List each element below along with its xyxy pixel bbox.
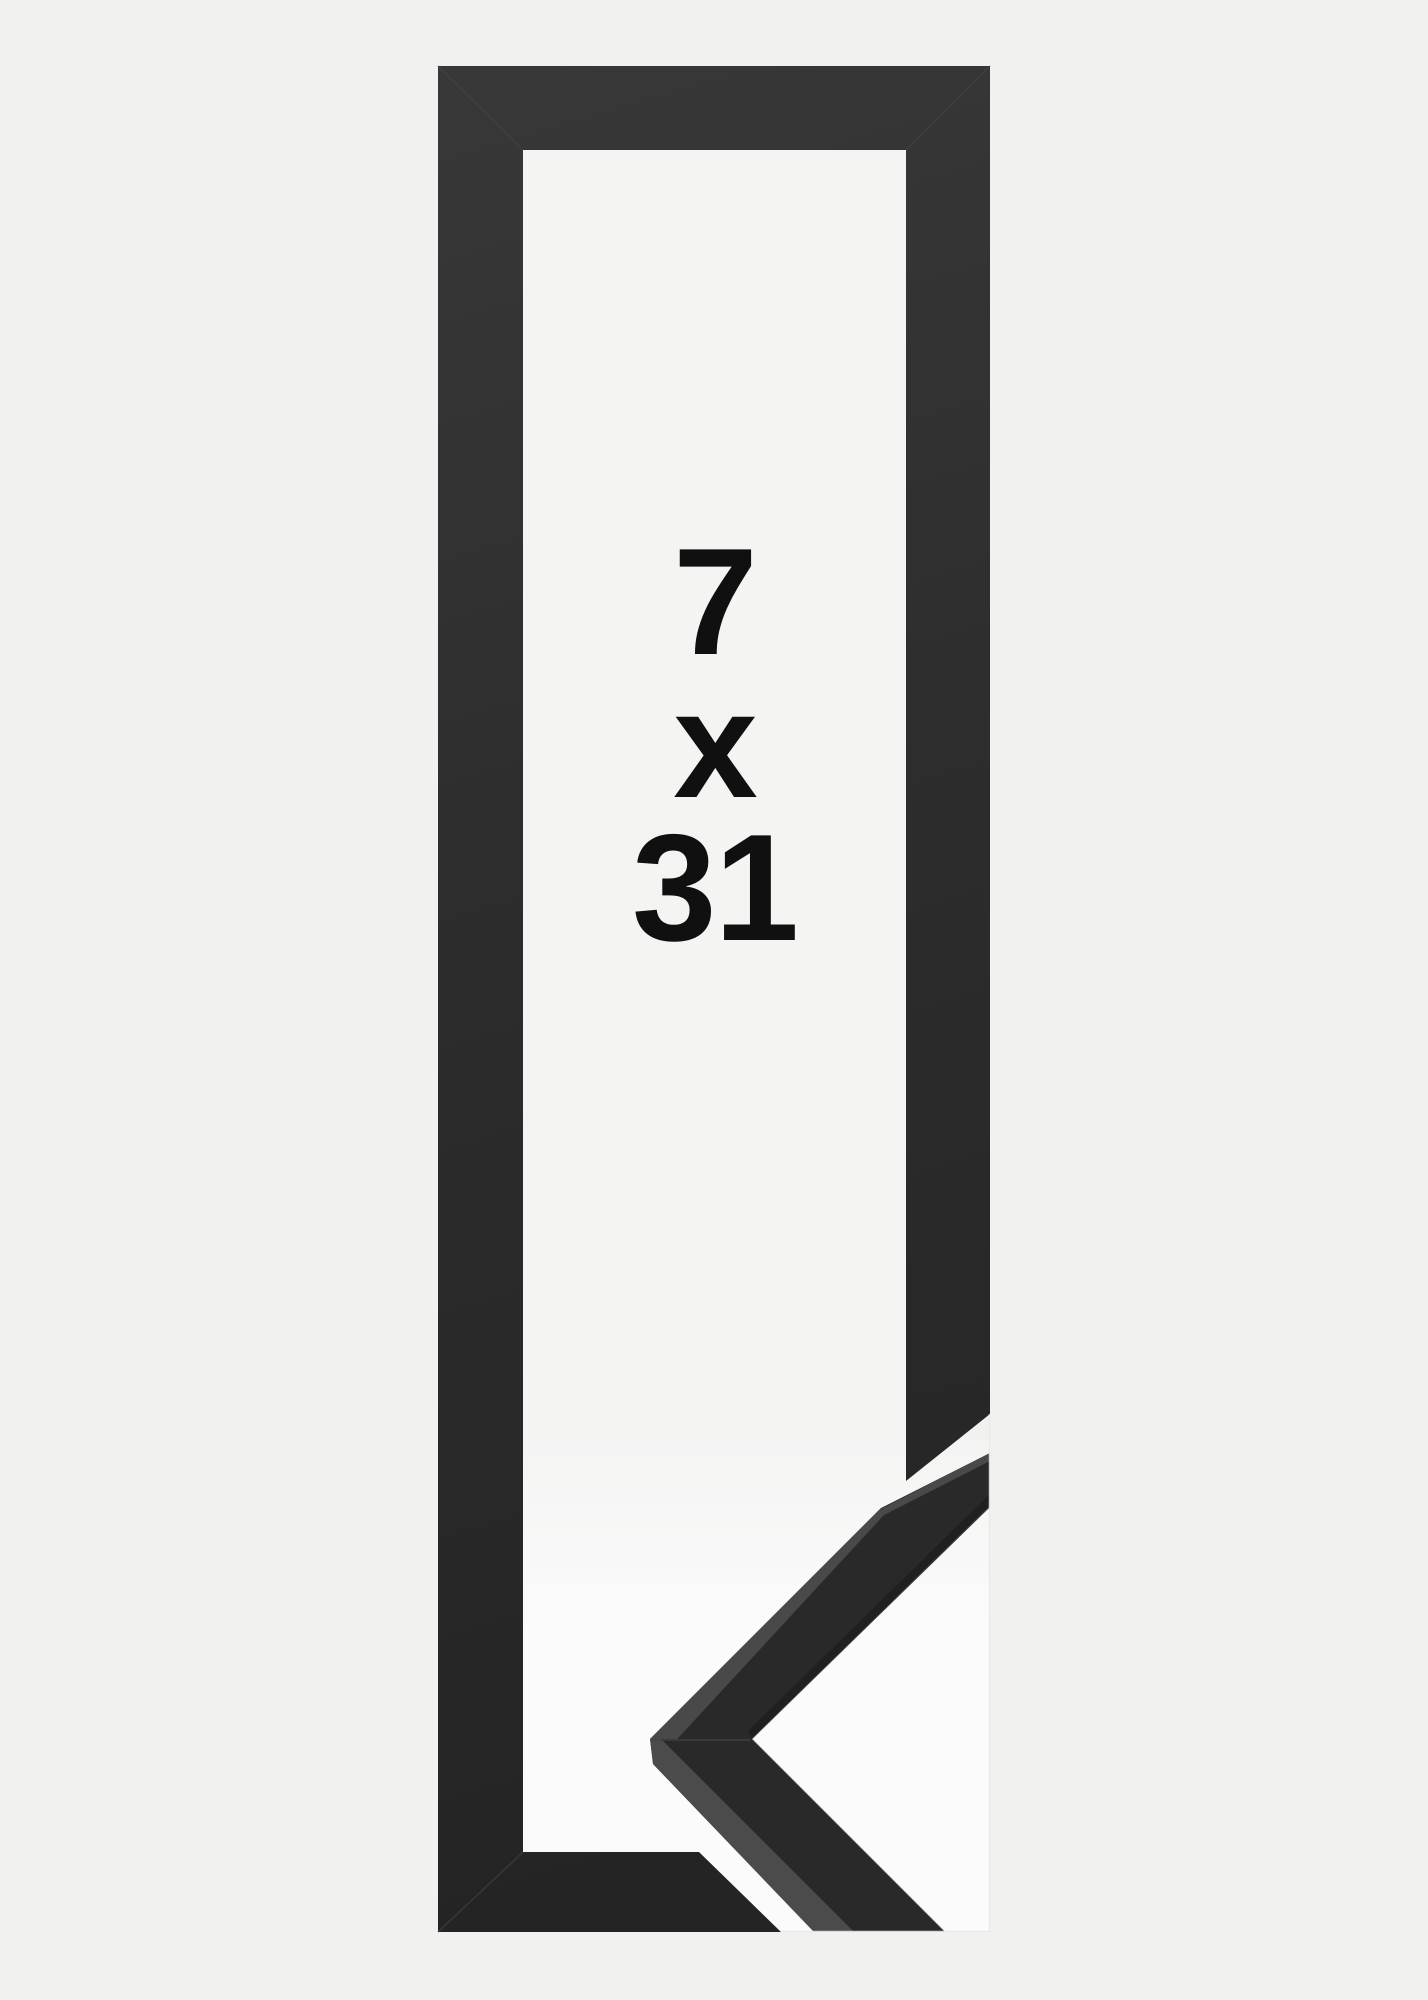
- size-height-value: 31: [523, 817, 906, 960]
- size-separator: x: [523, 674, 906, 817]
- size-width-value: 7: [523, 531, 906, 674]
- product-image-frame-7x31[interactable]: 7 x 31: [0, 0, 1428, 2000]
- frame-photo-illustration: [0, 0, 1428, 2000]
- size-label: 7 x 31: [523, 531, 906, 960]
